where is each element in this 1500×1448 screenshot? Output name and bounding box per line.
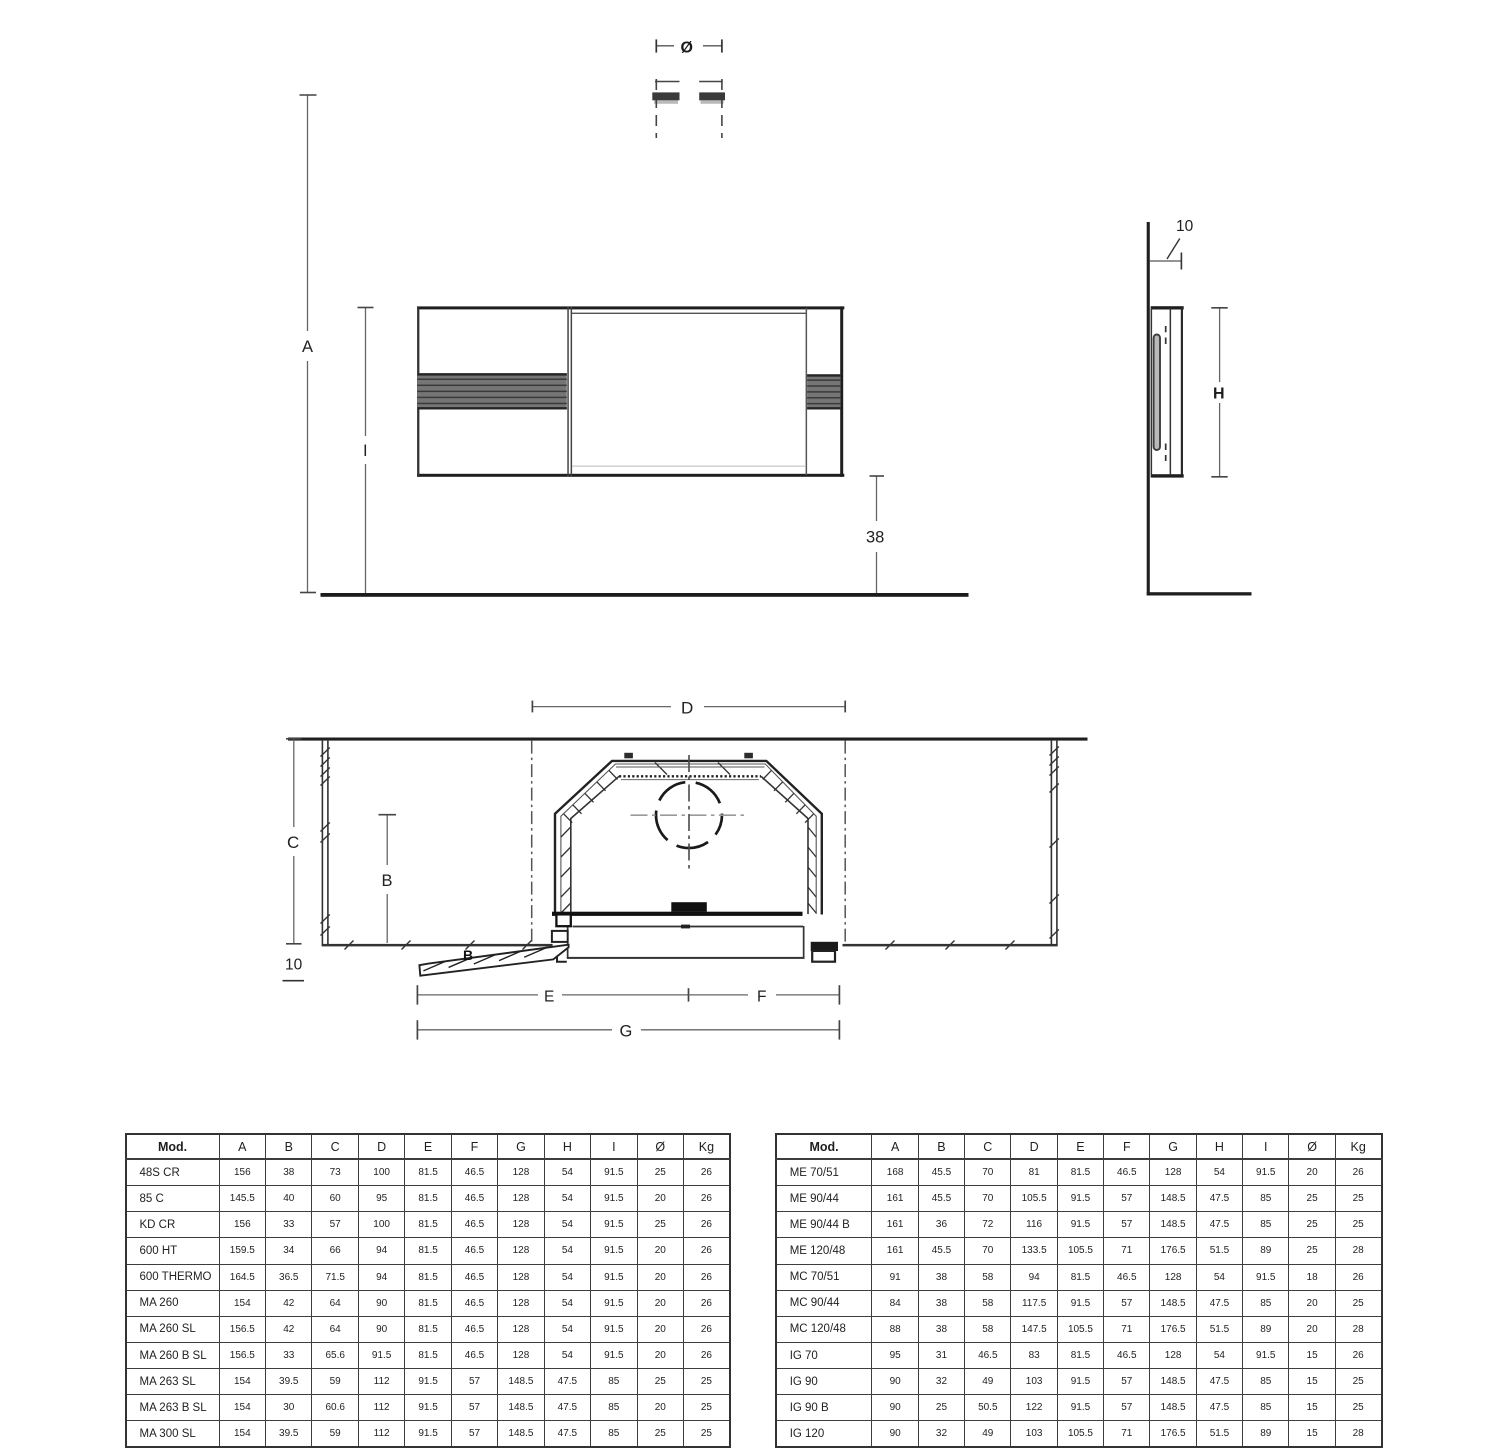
svg-text:D: D xyxy=(681,699,693,718)
svg-text:38: 38 xyxy=(866,529,884,547)
svg-text:B: B xyxy=(382,872,393,890)
svg-text:Ø: Ø xyxy=(681,40,693,57)
svg-text:E: E xyxy=(544,989,554,1006)
svg-text:A: A xyxy=(302,338,313,356)
svg-text:B: B xyxy=(463,947,473,963)
svg-text:I: I xyxy=(363,442,368,460)
svg-text:H: H xyxy=(1213,386,1225,403)
svg-text:10: 10 xyxy=(285,957,303,974)
svg-text:G: G xyxy=(620,1023,633,1041)
svg-text:C: C xyxy=(287,833,299,852)
svg-text:10: 10 xyxy=(1176,218,1194,235)
svg-text:F: F xyxy=(757,989,766,1006)
